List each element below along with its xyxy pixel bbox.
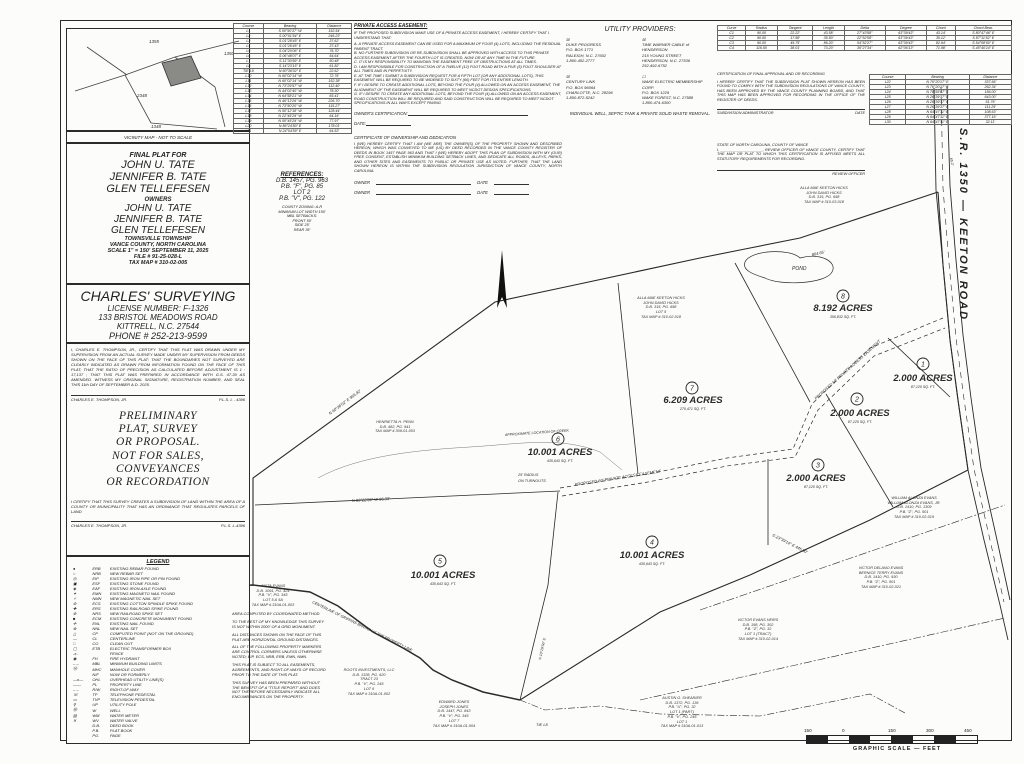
reference-line: P.B. "V", PG. 122: [250, 196, 354, 202]
bearing-label: 804.65': [811, 249, 825, 257]
svg-text:435,643 SQ. FT.: 435,643 SQ. FT.: [547, 459, 573, 463]
svg-text:87,120 SQ. FT.: 87,120 SQ. FT.: [911, 385, 935, 389]
pae-items: A. A PRIVATE ACCESS EASEMENT CAN BE USED…: [354, 42, 562, 106]
utilities-note: INDIVIDUAL WELL, SEPTIC TANK & PRIVATE S…: [564, 111, 716, 116]
vicinity-road-number: 1348: [151, 124, 162, 129]
adjoiner-jones: EDWARD JONESJOSEPH JONESD.B. 1447, PG. 8…: [408, 700, 500, 728]
tie-label: TIE L8: [536, 722, 549, 727]
turnout-label-2: ON TURNOUTS: [518, 479, 546, 483]
title-block: FINAL PLAT FOR JOHN U. TATE JENNIFER B. …: [66, 143, 250, 284]
zoning-info: COUNTY ZONING: A-R MINIMUM LOT WIDTH 150…: [250, 205, 354, 232]
svg-text:4: 4: [650, 540, 654, 547]
review-officer-certification: STATE OF NORTH CAROLINA, COUNTY OF VANCE…: [717, 143, 865, 176]
owner-name: JENNIFER B. TATE: [67, 214, 249, 225]
adjoiner-roots: ROOTS INVESTMENTS, LLCD.B. 1328, PG. 620…: [326, 668, 412, 696]
utility-providers: UTILITY PROVIDERS: ☒ DUKE PROGRESSP.O. B…: [564, 26, 716, 116]
svg-text:6: 6: [556, 437, 560, 444]
svg-text:435,643 SQ. FT.: 435,643 SQ. FT.: [639, 562, 665, 566]
svg-text:356,832 SQ. FT.: 356,832 SQ. FT.: [830, 315, 856, 319]
svg-text:2: 2: [854, 397, 859, 404]
owner-name: JOHN U. TATE: [67, 203, 249, 214]
firm-name: CHARLES' SURVEYING: [67, 288, 249, 304]
utilities-title: UTILITY PROVIDERS:: [564, 26, 716, 33]
easement-label-2: PROPOSED 60' PRIVATE ACCESS EASEMENT: [813, 338, 882, 400]
adjoiner-hicks-top: ALLA MAE KEETON HICKSJOHN DAVID HICKSD.B…: [778, 186, 870, 205]
bearing-label: N 86°22'36" W 96.33': [352, 496, 390, 503]
plat-name: JENNIFER B. TATE: [67, 171, 249, 183]
subdivision-cert-registration: P.L.S. L-4396: [221, 523, 245, 528]
lot-1: 1 2.000 ACRES 87,120 SQ. FT.: [892, 358, 953, 389]
references-block: REFERENCES: D.B. 1457, PG. 963 P.B. "F",…: [250, 172, 354, 232]
plat-name: GLEN TELLEFESEN: [67, 183, 249, 195]
surveyor-registration: P.L.S. L - 4396: [219, 397, 245, 402]
lot-2: 2 2.000 ACRES 87,120 SQ. FT.: [829, 393, 890, 424]
legend-table: ●ERBEXISTING REBAR FOUND○NRBNEW REBAR SE…: [72, 566, 244, 738]
svg-text:7: 7: [690, 386, 695, 393]
utility-provider: ☐ WAKE ELECTRIC MEMBERSHIP CORP.P.O. BOX…: [640, 72, 716, 109]
firm-address: 133 BRISTOL MEADOWS ROAD: [67, 313, 249, 322]
certification-block: I, CHARLES E. THOMPSON, JR., CERTIFY THA…: [66, 343, 250, 556]
private-access-easement: PRIVATE ACCESS EASEMENT: IF THE PROPOSED…: [354, 23, 562, 195]
line-table-left: Course Bearing Distance L1S 00°50'37" W1…: [233, 23, 352, 134]
lot-8: 8 8.192 ACRES 356,832 SQ. FT.: [813, 290, 873, 319]
svg-text:2.000 ACRES: 2.000 ACRES: [829, 408, 890, 419]
svg-text:270,471 SQ. FT.: 270,471 SQ. FT.: [679, 407, 706, 411]
lot-labels: 1 2.000 ACRES 87,120 SQ. FT. 2 2.000 ACR…: [411, 290, 954, 586]
utility-provider: ☒ DUKE PROGRESSP.O. BOX 1771RALEIGH, N.C…: [564, 35, 640, 72]
approval-text: I HEREBY CERTIFY THAT THE SUBDIVISION PL…: [717, 80, 865, 103]
lot-4: 4 10.001 ACRES 435,643 SQ. FT.: [620, 536, 685, 566]
keeton-road: [934, 86, 1010, 640]
subdivision-certification: I CERTIFY THAT THIS SURVEY CREATES A SUB…: [71, 499, 245, 514]
svg-text:10.001 ACRES: 10.001 ACRES: [528, 447, 593, 458]
surveyor-signature: CHARLES E. THOMPSON, JR.: [71, 397, 127, 402]
surveyor-block: CHARLES' SURVEYING LICENSE NUMBER: F-132…: [66, 284, 250, 343]
svg-text:6.209 ACRES: 6.209 ACRES: [663, 395, 723, 406]
utility-provider: ☒ TIME WARNER CABLE of HENDERSON215 YOUN…: [640, 35, 716, 72]
bearing-label: 65.0': [949, 157, 954, 166]
legend-title: LEGEND: [72, 559, 244, 565]
firm-phone: PHONE # 252-213-9599: [67, 331, 249, 341]
adjoiner-shearier: AUSTIN G. SHEARIERD.B. 1372, PG. 136P.B.…: [636, 696, 728, 729]
legend: LEGEND ●ERBEXISTING REBAR FOUND○NRBNEW R…: [66, 556, 250, 744]
svg-text:435,643 SQ. FT.: 435,643 SQ. FT.: [430, 582, 456, 586]
vicinity-subject-parcel: [162, 56, 201, 86]
svg-text:87,120 SQ. FT.: 87,120 SQ. FT.: [804, 485, 828, 489]
owner-signature-line: OWNER DATE: [354, 190, 562, 195]
approval-title: CERTIFICATION OF FINAL APPROVAL AND OR R…: [717, 72, 865, 77]
vicinity-road-number: 2348: [136, 93, 148, 98]
north-arrow: [234, 250, 507, 578]
graphic-scale: 150 0 150 300 450 GRAPHIC SCALE — FEET: [802, 728, 1002, 760]
vicinity-caption: VICINITY MAP - NOT TO SCALE: [66, 131, 250, 143]
owners-cert-date-line: DATE:: [354, 121, 562, 126]
line-table-right: Course Bearing Distance L22N 76°20'17" E…: [869, 74, 1012, 125]
svg-text:8.192 ACRES: 8.192 ACRES: [813, 303, 873, 314]
svg-text:1: 1: [921, 362, 925, 369]
svg-text:2.000 ACRES: 2.000 ACRES: [892, 373, 953, 384]
scale-tick: 150: [804, 728, 812, 733]
svg-text:10.001 ACRES: 10.001 ACRES: [620, 550, 685, 561]
adjoiner-penn: HENRIETTA H. PENND.B. 482, PG. 941TAX MA…: [352, 420, 438, 434]
tax-map-number: TAX MAP # 310-02-005: [67, 260, 249, 266]
scale-bar: [806, 735, 978, 744]
adjoiner-william-evans: WILLIAM ALONZA EVANSWILLIAM ALONZA EVANS…: [862, 496, 966, 520]
adjoiner-anita-evans: ANITA EVANSD.B. 1091, PG. 424P.B. "V", P…: [240, 584, 306, 608]
pae-title: PRIVATE ACCESS EASEMENT:: [354, 23, 562, 29]
turnout-label-1: 25' RADIUS: [517, 473, 539, 477]
adjoiner-victor-delano-evans: VICTOR DELANO EVANSBERNICE TERRY EVANSD.…: [834, 566, 928, 590]
firm-city: KITTRELL, N.C. 27544: [67, 322, 249, 331]
bearing-label: S 23°39'14" E 445.90': [772, 532, 809, 554]
svg-text:87,120 SQ. FT.: 87,120 SQ. FT.: [848, 420, 872, 424]
date-label: DATE: [855, 111, 865, 115]
pond-outline: [744, 252, 833, 283]
survey-plat-sheet: 1 2.000 ACRES 87,120 SQ. FT. 2 2.000 ACR…: [0, 0, 1024, 764]
survey-notes: AREA COMPUTED BY COORDINATED METHODTO TH…: [232, 612, 328, 703]
vicinity-road-number: 1355: [149, 39, 160, 44]
utility-provider: ☒ CENTURY LINKP.O. BOX 96064CHARLOTTE, N…: [564, 72, 640, 109]
subdivision-administrator-label: SUBDIVISION ADMINISTRATOR: [717, 111, 773, 115]
access-easement: [560, 318, 945, 496]
adjoiner-hicks-left: ALLA MAE KEETON HICKSJOHN DAVID HICKSD.B…: [612, 296, 710, 320]
review-text: I, ____________________, REVIEW OFFICER …: [717, 148, 865, 162]
lot-7: 7 6.209 ACRES 270,471 SQ. FT.: [663, 382, 723, 411]
bearing-label: N 10°29'56" E: [538, 637, 547, 660]
lot-5: 5 10.001 ACRES 435,643 SQ. FT.: [411, 555, 476, 586]
svg-text:10.001 ACRES: 10.001 ACRES: [411, 570, 476, 581]
pond-label: POND: [792, 266, 807, 272]
ownership-cert-text: I (WE) HEREBY CERTIFY THAT I AM (WE ARE)…: [354, 142, 562, 174]
subdivision-cert-signature: CHARLES E. THOMPSON, JR.: [71, 523, 127, 528]
owner-signature-line: OWNER DATE: [354, 180, 562, 185]
approval-certification: CERTIFICATION OF FINAL APPROVAL AND OR R…: [717, 72, 865, 115]
easement-label-1: PROPOSED 60' PRIVATE ACCESS EASEMENT: [574, 468, 661, 487]
lot-3: 3 2.000 ACRES 87,120 SQ. FT.: [785, 459, 846, 489]
map-annotations: POND APPROXIMATE LOCATION OF CREEK CENTE…: [312, 157, 955, 727]
road-label: S.R. 1350 — KEETON ROAD: [957, 128, 969, 358]
scale-tick: 450: [964, 728, 972, 733]
scale-caption: GRAPHIC SCALE — FEET: [802, 746, 992, 752]
firm-license: LICENSE NUMBER: F-1326: [67, 304, 249, 313]
preliminary-notice: PRELIMINARY PLAT, SURVEY OR PROPOSAL. NO…: [71, 410, 245, 489]
owner-name: GLEN TELLEFESEN: [67, 225, 249, 236]
scale-tick: 300: [926, 728, 934, 733]
review-officer-label: REVIEW OFFICER: [832, 172, 865, 176]
adjoiner-victor-evans-heirs: VICTOR EVANS HEIRSD.B. 198, PG. 302P.B. …: [716, 618, 800, 642]
vicinity-map: 1355 1350 2348 1348: [66, 28, 250, 131]
plat-name: JOHN U. TATE: [67, 159, 249, 171]
surveyor-certification: I, CHARLES E. THOMPSON, JR., CERTIFY THA…: [71, 347, 245, 387]
scale-tick: 150: [888, 728, 896, 733]
svg-text:2.000 ACRES: 2.000 ACRES: [785, 473, 846, 484]
owners-certification-line: OWNER'S CERTIFICATION:: [354, 111, 562, 116]
scale-tick: 0: [842, 728, 845, 733]
adjoiner-lines: [640, 505, 1005, 700]
svg-text:8: 8: [841, 294, 845, 301]
lot-6: 6 10.001 ACRES 435,643 SQ. FT.: [528, 433, 593, 463]
pae-intro: IF THE PROPOSED SUBDIVISION MAKE USE OF …: [354, 31, 562, 40]
final-plat-for: FINAL PLAT FOR: [67, 152, 249, 159]
svg-text:5: 5: [438, 559, 442, 566]
curve-table: CurveRadius TangentLength DeltaDegree Ch…: [717, 25, 1012, 51]
ownership-cert-title: CERTIFICATE OF OWNERSHIP AND DEDICATION: [354, 135, 562, 140]
svg-text:3: 3: [816, 463, 820, 470]
